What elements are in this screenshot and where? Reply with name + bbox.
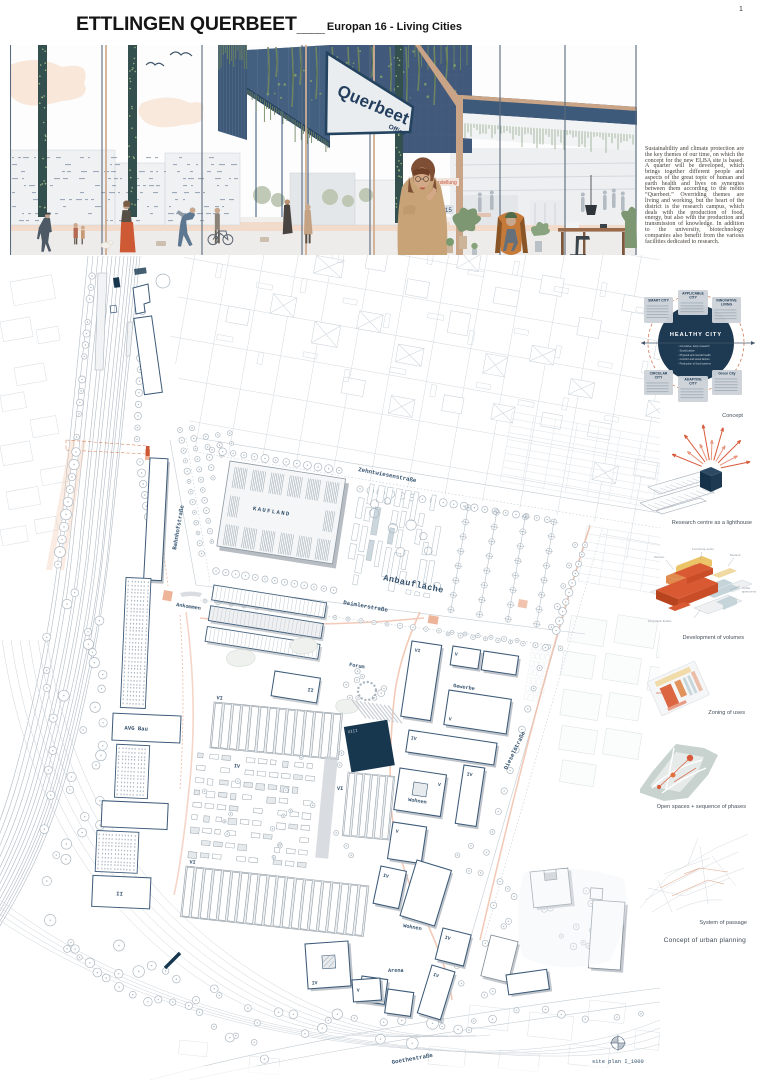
svg-text:VI: VI — [337, 786, 343, 792]
svg-text:SMART CITY: SMART CITY — [648, 299, 669, 303]
svg-text:Wohnen: Wohnen — [654, 555, 665, 559]
svg-text:VI: VI — [414, 648, 421, 655]
svg-text:AVG Bau: AVG Bau — [124, 725, 148, 733]
svg-text:Green City: Green City — [718, 372, 735, 376]
svg-text:II: II — [307, 687, 314, 694]
svg-text:CITY: CITY — [689, 382, 697, 386]
svg-text:- Social justice: - Social justice — [678, 348, 695, 352]
svg-text:V: V — [357, 987, 360, 993]
svg-text:CITY: CITY — [655, 376, 663, 380]
svg-text:Open spaces + sequence of phas: Open spaces + sequence of phases — [657, 804, 747, 810]
svg-text:LIVING: LIVING — [721, 303, 733, 307]
svg-text:System of passage: System of passage — [699, 920, 747, 926]
svg-text:- Physical and mental health: - Physical and mental health — [678, 353, 711, 357]
svg-text:CITY: CITY — [689, 296, 697, 300]
svg-text:- Innovative, lively research: - Innovative, lively research — [678, 344, 710, 348]
svg-text:site plan I_1000: site plan I_1000 — [592, 1059, 644, 1065]
svg-text:Bestand: Bestand — [730, 553, 741, 557]
svg-text:Arena: Arena — [388, 968, 404, 974]
svg-text:- Production of food systems: - Production of food systems — [678, 362, 712, 366]
svg-text:Concept: Concept — [722, 413, 743, 419]
svg-text:Wohnen: Wohnen — [656, 691, 667, 695]
svg-text:IV: IV — [312, 980, 318, 986]
svg-text:VI: VI — [216, 695, 223, 702]
svg-text:living+work flexible: living+work flexible — [648, 619, 672, 623]
svg-text:HEALTHY CITY: HEALTHY CITY — [670, 332, 722, 338]
svg-text:apartments: apartments — [742, 589, 757, 593]
svg-text:Forschung+Lehre: Forschung+Lehre — [692, 547, 714, 551]
svg-text:Development of volumes: Development of volumes — [682, 635, 744, 641]
svg-text:IV: IV — [410, 735, 417, 742]
svg-text:Concept of urban planning: Concept of urban planning — [664, 937, 746, 944]
svg-text:II: II — [116, 890, 123, 897]
svg-text:VI: VI — [189, 859, 196, 866]
svg-text:Zoning of uses: Zoning of uses — [708, 710, 745, 716]
svg-text:- Comfort and social factors: - Comfort and social factors — [678, 357, 710, 361]
svg-text:Research centre as a lighthous: Research centre as a lighthouse — [672, 520, 752, 526]
svg-text:IV: IV — [466, 772, 473, 779]
